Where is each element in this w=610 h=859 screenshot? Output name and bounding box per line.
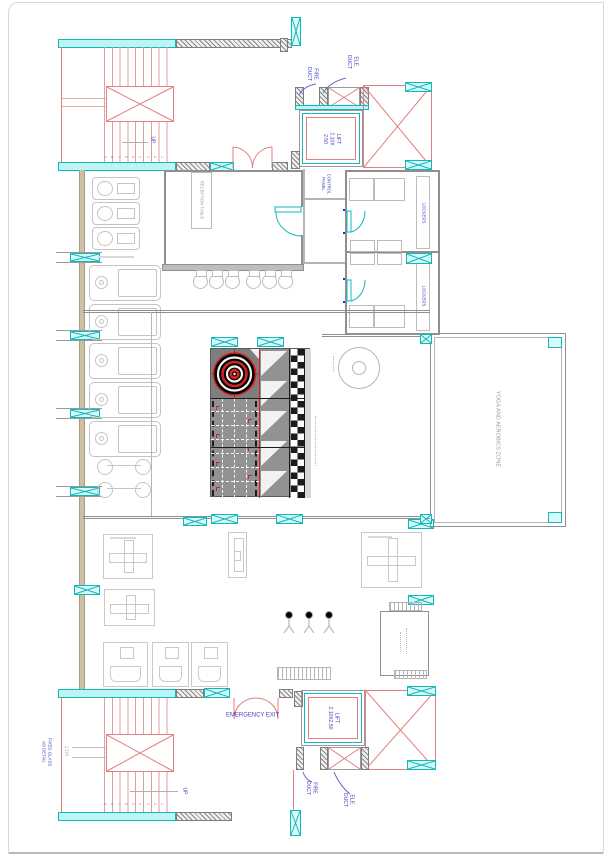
stair-bottom-step-numbers: 987654321: [100, 799, 166, 809]
stool: [262, 274, 277, 289]
zone-divider-wall: [151, 312, 152, 517]
pattern-grid: [234, 399, 235, 498]
stool: [246, 274, 261, 289]
floor-pattern-panel: [210, 348, 310, 497]
platform-note-mark: [406, 628, 407, 654]
corridor-wall: [83, 310, 430, 313]
column-box: [405, 160, 432, 170]
target-circles: [211, 349, 259, 399]
bottom-wall-cyan: [58, 689, 176, 698]
gym-machine: [103, 534, 153, 579]
emergency-exit-label: EMERGENCY EXIT: [226, 712, 279, 718]
column-box: [405, 82, 432, 92]
wash-unit: [350, 253, 375, 265]
stair-top-step-numbers: 987654321: [100, 152, 166, 162]
stair-dim-label: 1.110: [63, 746, 68, 756]
stool: [278, 274, 293, 289]
stair-top-landing: [106, 86, 174, 122]
changing-door-top: [346, 210, 367, 234]
wash-unit: [377, 253, 402, 265]
pattern-grid: [222, 399, 223, 498]
changing-door-bottom: [346, 279, 367, 303]
bench: [374, 305, 405, 328]
column-box: [74, 585, 100, 595]
wall-hatch: [176, 812, 232, 821]
fire-duct-leader: [296, 82, 320, 98]
pattern-grid: [246, 399, 247, 498]
bench: [374, 178, 405, 201]
hinge-dot: [343, 232, 345, 234]
duct-strip-top: [291, 17, 301, 46]
gym-machine: [228, 532, 247, 578]
wash-unit: [377, 240, 402, 252]
stool: [209, 274, 224, 289]
pattern-edge-strip: [305, 349, 311, 498]
lift-bottom-label: LIFT2.10X2.50: [327, 707, 340, 730]
fixed-glass-label: FIXED GLASSAS DETAIL: [41, 738, 52, 766]
column-box: [407, 686, 436, 696]
pattern-black-line: [289, 349, 290, 498]
pattern-black-line: [211, 447, 305, 448]
ele-duct-leader: [318, 76, 348, 96]
stair-top-rail-line: [62, 98, 107, 99]
dumbbell-rack: [277, 667, 331, 680]
control-room-wall: [303, 262, 345, 264]
hinge-dot: [343, 209, 345, 211]
control-room-wall: [303, 198, 345, 200]
stair-top-wall-bottom-cyan: [58, 162, 176, 171]
table-note-mark: [333, 356, 334, 372]
column-box: [211, 514, 238, 524]
fire-duct-leader: [300, 770, 316, 784]
corner-detail: [548, 337, 562, 348]
wall-hatch: [280, 38, 288, 52]
pattern-red-mark: [216, 462, 220, 466]
wall-red-line: [293, 770, 294, 812]
weight-rack: [394, 670, 427, 679]
ele-duct-leader: [330, 770, 354, 796]
weight-platform: [380, 611, 429, 676]
checker-strip: [291, 349, 304, 498]
stool: [193, 274, 208, 289]
pattern-grid: [211, 425, 259, 426]
bench: [349, 178, 374, 201]
round-table-center: [352, 361, 366, 375]
stair-top-wall-hatch: [176, 39, 292, 48]
stool: [225, 274, 240, 289]
ele-duct-shaft-bottom: [328, 747, 361, 770]
column-box: [406, 253, 432, 264]
lift-shaft-top: [363, 85, 432, 168]
platform-note-mark: [400, 632, 401, 652]
hinge-dot: [343, 301, 345, 303]
column-box: [420, 514, 432, 524]
column-box: [276, 514, 303, 524]
entrance-double-door: [232, 146, 273, 169]
exercise-machine: [92, 227, 140, 250]
lift-top-label: LIFT2.10X2.50: [322, 132, 341, 145]
lift-shaft-bottom: [365, 690, 436, 770]
duct-strip-bottom: [290, 810, 301, 836]
pattern-grid: [211, 467, 259, 468]
gym-bench-machine: [152, 642, 189, 687]
exercise-machine: [92, 202, 140, 225]
column-box: [407, 760, 436, 770]
column-box: [204, 688, 230, 698]
corner-detail: [548, 512, 562, 523]
exercise-machine: [92, 177, 140, 200]
left-exterior-wall: [79, 170, 85, 694]
lockers-top-label: LOCKERS: [420, 203, 425, 224]
stair-bottom-up-label: UP: [181, 787, 187, 794]
pattern-red-mark: [248, 475, 252, 479]
floor-plan-sheet: UP 987654321 FIREDUCT ELE.DUCT LIFT2.10X…: [0, 0, 610, 859]
wall-hatch: [279, 689, 293, 698]
wash-unit: [350, 240, 375, 252]
column-box: [70, 253, 100, 262]
dim-leader: [72, 747, 106, 748]
column-box: [70, 487, 100, 496]
column-box: [211, 337, 238, 347]
equipment-micro-label: [110, 537, 136, 539]
pattern-note-mark: [315, 416, 316, 466]
duct-pier: [296, 747, 304, 770]
corridor-wall: [83, 516, 430, 519]
weight-rack: [389, 602, 422, 611]
exercise-bike: [97, 458, 151, 475]
column-box: [257, 337, 284, 347]
dumbbell-stands: [282, 610, 342, 636]
reception-door: [274, 206, 303, 237]
lockers-bottom-label: LOCKERS: [420, 286, 425, 307]
fire-duct-top-label: FIREDUCT: [306, 67, 319, 81]
control-panel-label: CONTROLPANEL: [320, 174, 331, 195]
up-leader-line: [130, 791, 178, 792]
pattern-grid: [211, 439, 259, 440]
gym-machine: [104, 589, 155, 626]
column-box: [420, 334, 432, 344]
stair-top-up-label: UP: [149, 136, 155, 143]
wall-hatch: [291, 151, 300, 169]
bench: [349, 305, 374, 328]
pattern-grid: [211, 481, 259, 482]
stair-bottom-wall-cyan: [58, 812, 176, 821]
hinge-dot: [343, 278, 345, 280]
reception-table-label: RECEPTION TABLE: [198, 181, 203, 220]
yoga-zone-label: YOGA AND AEROBICS ZONE: [494, 391, 501, 467]
ele-duct-top-label: ELE.DUCT: [346, 55, 359, 69]
equipment-micro-label: [98, 256, 134, 258]
duct-pier: [320, 747, 328, 770]
stair-top-left-wall: [61, 47, 62, 163]
pattern-grid: [211, 453, 259, 454]
up-leader-line: [122, 142, 148, 143]
column-box: [183, 517, 207, 526]
stair-bottom-landing: [106, 734, 174, 772]
treadmill: [89, 265, 161, 301]
pattern-red-mark: [216, 406, 220, 410]
control-room-wall: [303, 169, 305, 264]
stair-bottom-left-wall: [61, 698, 62, 812]
pattern-red-mark: [216, 434, 220, 438]
gym-bench-machine: [103, 642, 148, 687]
gym-bench-machine: [191, 642, 228, 687]
pattern-grid: [211, 411, 259, 412]
equipment-micro-label: [368, 536, 392, 538]
pattern-triangles: [259, 349, 289, 498]
corridor-wall: [322, 334, 430, 337]
pattern-red-mark: [216, 487, 220, 491]
exercise-bike: [97, 481, 151, 498]
wall-hatch: [176, 689, 204, 698]
pattern-red-mark: [248, 419, 252, 423]
duct-pier: [361, 747, 369, 770]
dim-leader: [72, 757, 106, 758]
gym-machine: [361, 532, 422, 588]
stair-top-rail-line: [62, 106, 107, 107]
pattern-black-line: [211, 398, 305, 399]
